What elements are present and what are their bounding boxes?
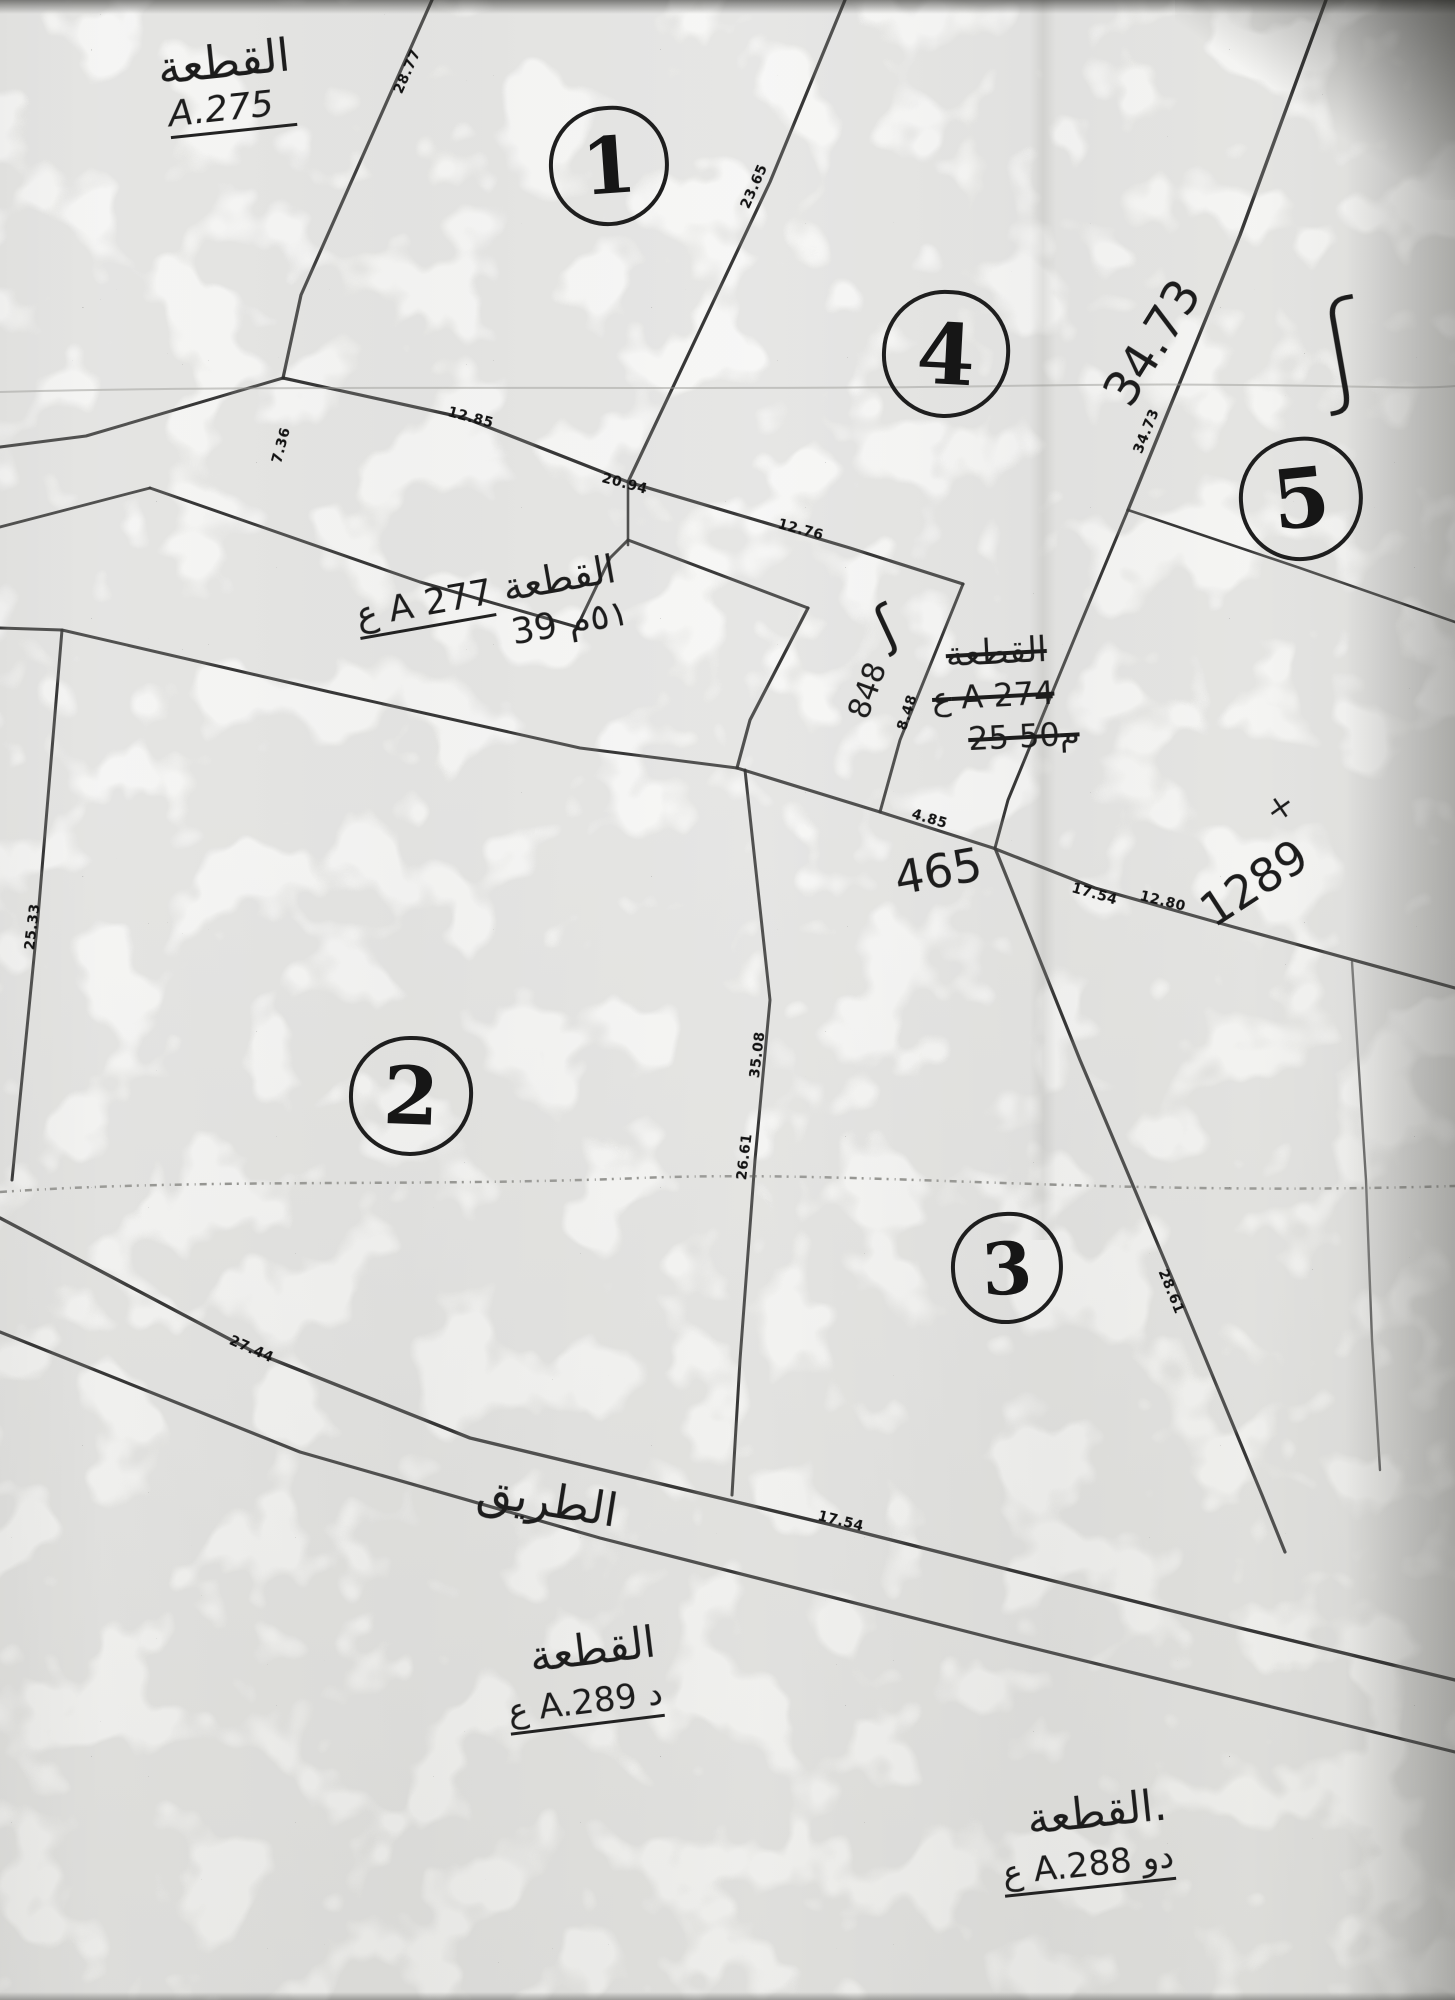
scan-edge-shadow-right [1345,0,1455,2000]
parcel-boundary-lines [0,0,1455,2000]
scanned-survey-page: 1 2 3 4 5 القطعة A.275 ع A 277 القطعة ٥١… [0,0,1455,2000]
vertical-fold-shading [1030,0,1056,1240]
plot-number: 4 [914,303,978,405]
plot-number: 5 [1268,448,1335,549]
parcel-label-a275: القطعة A.275 [155,28,297,139]
parcel-label-a289: القطعة ع A.289 د [499,1617,665,1735]
scan-noise-layer [0,0,1455,2000]
scan-edge-shadow-bottom [0,1992,1455,2000]
parcel-a274-code: ع A 274 [931,672,1078,718]
scan-edge-shadow-corner [1175,0,1455,200]
parcel-label-a288: القطعة. ع A.288 دو [995,1780,1176,1897]
plot-number: 3 [980,1224,1034,1312]
parcel-a274-area: 25 50م [967,714,1080,758]
plot-number: 2 [382,1048,441,1144]
plot-number: 1 [579,119,639,214]
parcel-label-a274-crossed: القطعة ع A 274 25 50م [929,628,1081,759]
parcel-a274-word: القطعة [945,628,1076,675]
